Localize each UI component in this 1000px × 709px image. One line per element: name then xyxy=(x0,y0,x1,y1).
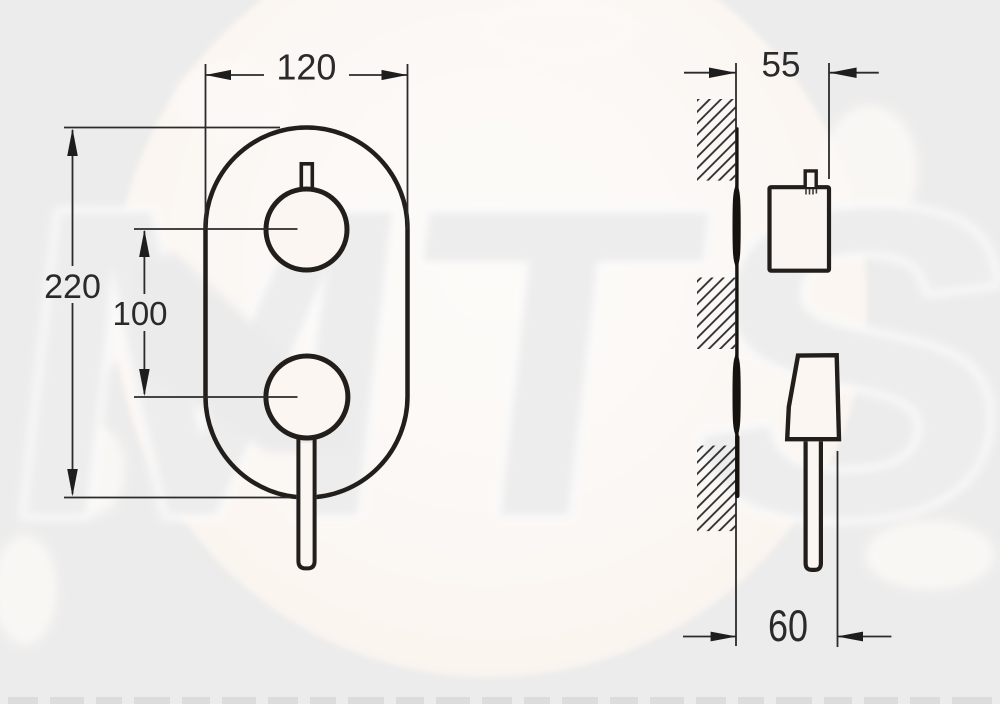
svg-text:120: 120 xyxy=(276,47,336,88)
svg-text:55: 55 xyxy=(762,45,801,84)
svg-text:60: 60 xyxy=(768,600,808,651)
svg-text:100: 100 xyxy=(112,295,167,332)
svg-text:220: 220 xyxy=(44,268,101,306)
